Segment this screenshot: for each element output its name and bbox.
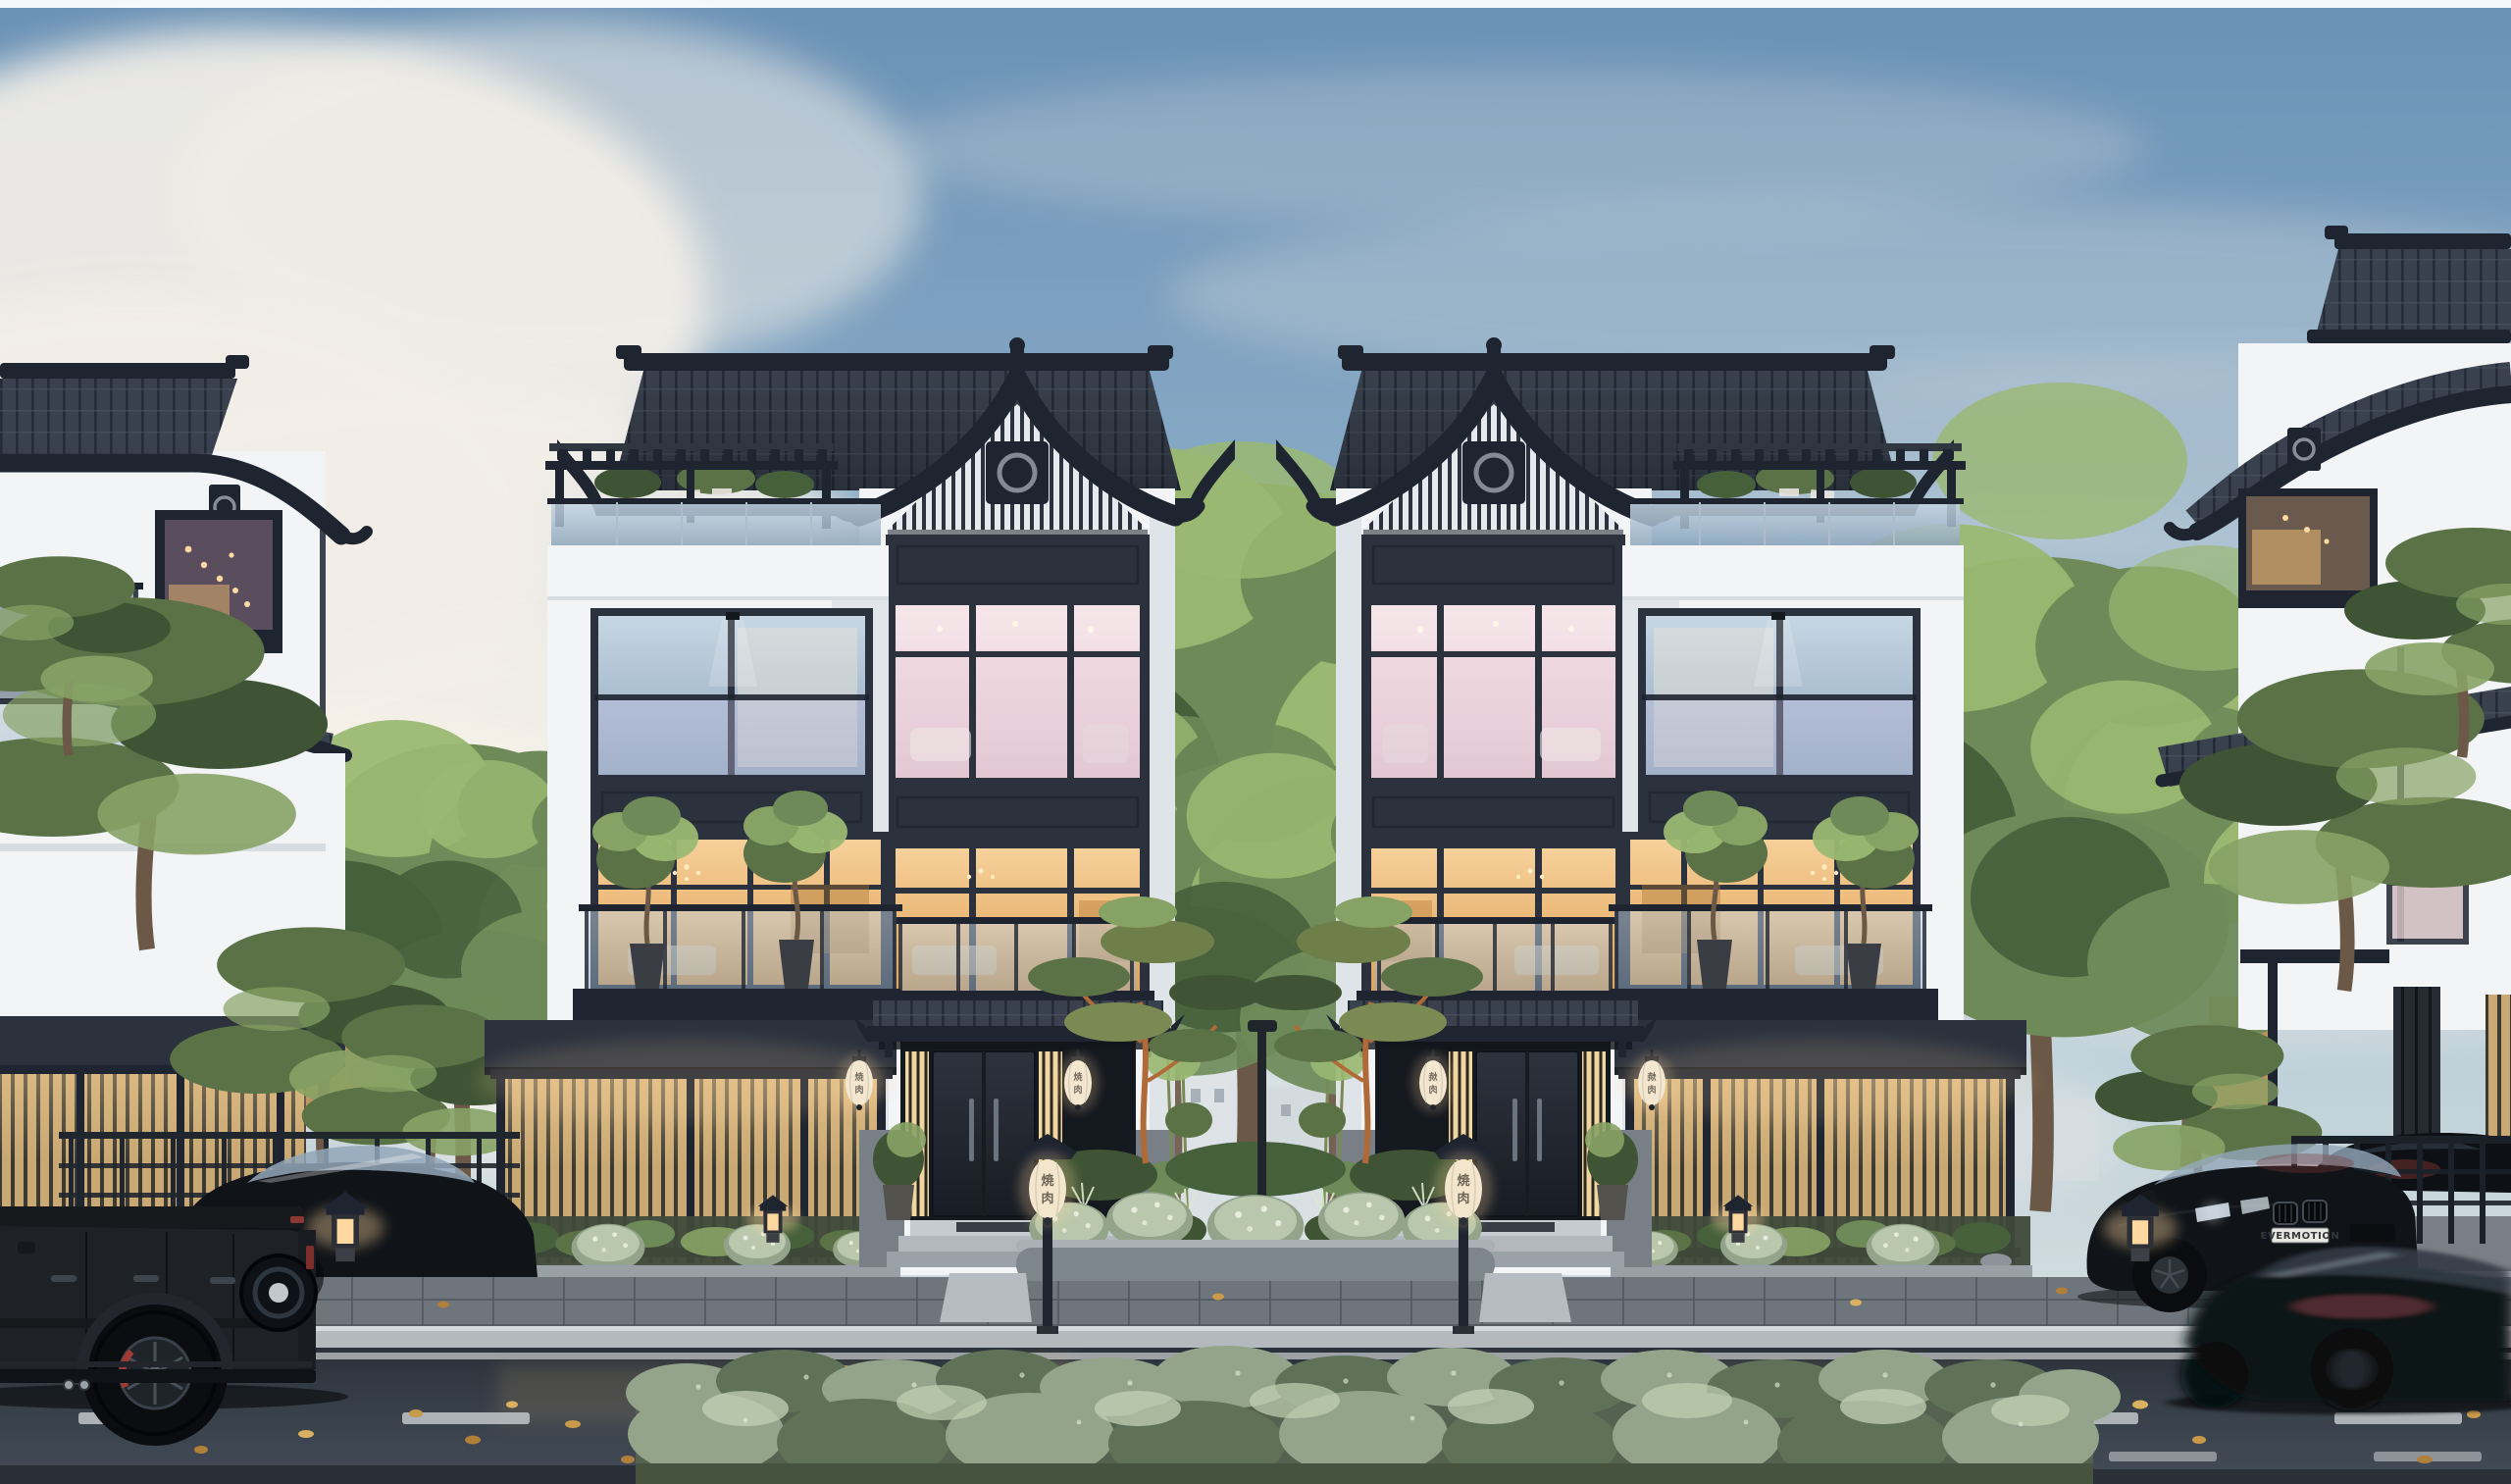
red-light-streak <box>2293 1295 2431 1318</box>
walkway <box>940 1273 1032 1322</box>
foreground-hedge <box>626 1346 2121 1484</box>
taillight <box>306 1246 314 1269</box>
lit-window <box>2238 488 2378 608</box>
top-border <box>0 0 2511 8</box>
architectural-rendering: 焼 肉 焼 肉 <box>0 0 2511 1484</box>
planter-wall <box>1016 1248 1495 1281</box>
license-plate-text: EVERMOTION <box>2261 1231 2340 1242</box>
walkway <box>1479 1273 1571 1322</box>
wing-third-floor-window <box>590 608 873 783</box>
side-mirror <box>18 1242 35 1254</box>
third-floor-window-pink <box>886 595 1150 788</box>
round-motif-plaque <box>2287 428 2321 471</box>
round-motif-plaque <box>986 441 1049 504</box>
scene-canvas: 焼 肉 焼 肉 <box>0 0 2511 1484</box>
terrace-glass-railing <box>547 498 885 545</box>
